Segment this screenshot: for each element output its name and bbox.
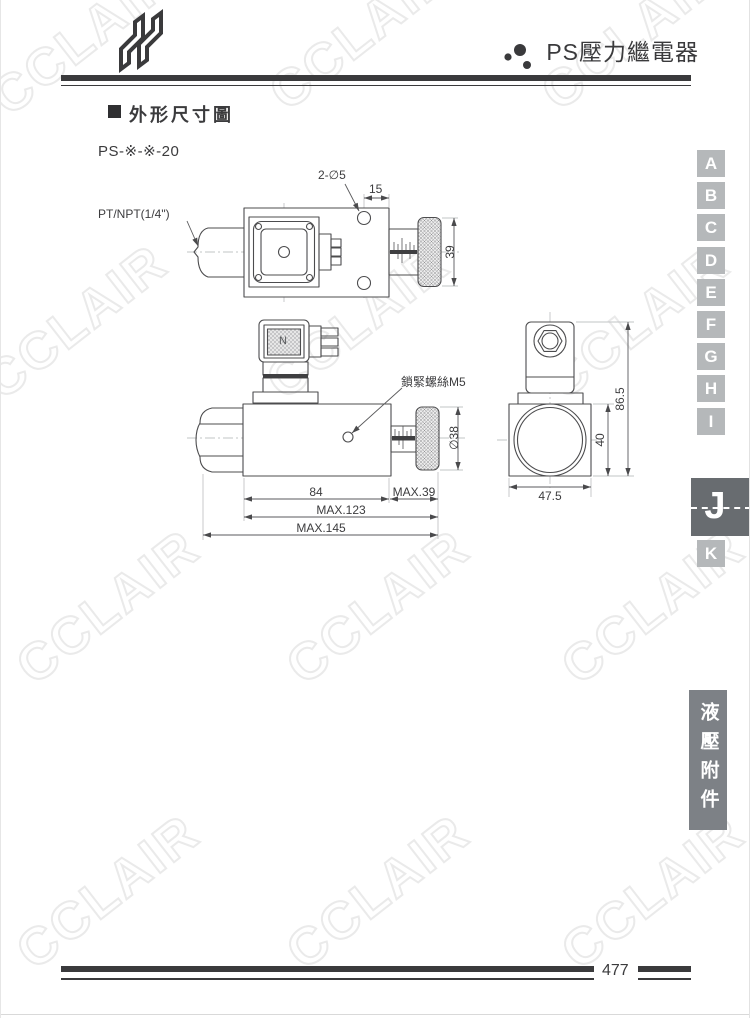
dim-84: 84 [309,485,322,499]
dim-max-145: MAX.145 [296,521,345,535]
dim-max-39: MAX.39 [393,485,436,499]
dim-knob-diameter: ∅38 [447,426,461,450]
footer-rule-thin [61,978,594,980]
section-bullet-icon [108,105,121,118]
brand-logo-icon [113,9,169,73]
footer-rule-thin-right [638,978,691,980]
category-side-label: 液壓附件 [695,702,722,818]
index-tab-g[interactable]: G [697,343,725,370]
footer-rule-thick-right [638,966,691,972]
index-tab-a[interactable]: A [697,150,725,177]
connector-n-label: N [279,335,287,347]
dim-47-5: 47.5 [538,489,561,503]
index-tab-j-active[interactable]: J [691,478,750,536]
index-tab-k[interactable]: K [697,540,725,567]
index-tab-e[interactable]: E [697,279,725,306]
index-tab-h[interactable]: H [697,375,725,402]
dim-39: 39 [443,245,457,258]
section-heading: 外形尺寸圖 [129,101,234,127]
holes-label: 2-∅5 [318,168,346,182]
header-rule-thick [61,75,691,81]
dim-40: 40 [593,433,607,446]
dim-86-5: 86.5 [613,387,627,410]
index-tab-j-label: J [704,485,725,527]
footer-rule-thick [61,966,594,972]
page-number: 477 [602,962,629,980]
index-tab-f[interactable]: F [697,311,725,338]
port-thread-label: PT/NPT(1/4") [98,207,170,221]
tab-dashed-line [691,507,750,509]
index-tab-b[interactable]: B [697,182,725,209]
dim-max-123: MAX.123 [316,503,365,517]
lock-screw-label: 鎖緊螺絲M5 [401,373,466,390]
page-title: PS壓力繼電器 [546,33,699,67]
index-tab-c[interactable]: C [697,214,725,241]
index-tab-i[interactable]: I [697,408,725,435]
dim-15: 15 [369,182,382,196]
index-tab-d[interactable]: D [697,247,725,274]
catalog-page: CCLAIR CCLAIR CCLAIR CCLAIR CCLAIR CCLAI… [0,0,750,1018]
category-side-box: 液壓附件 [689,690,727,830]
header-rule-thin [61,85,691,87]
title-dots-icon [502,42,534,72]
model-number: PS-※-※-20 [98,142,179,160]
